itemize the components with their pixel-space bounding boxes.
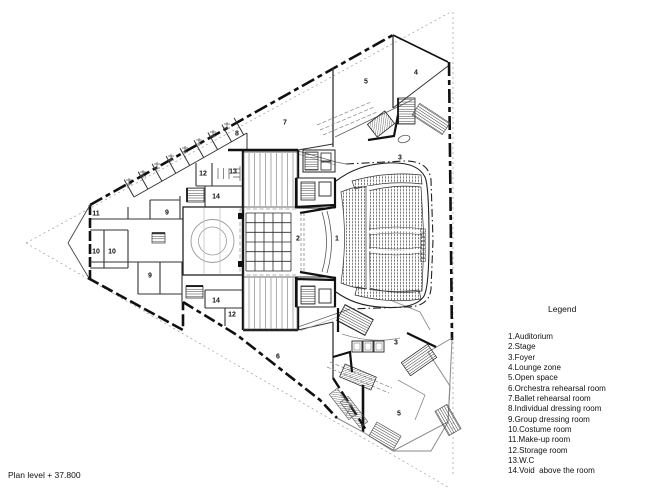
legend-list: 1.Auditorium2.Stage3.Foyer4.Lounge zone5… — [505, 332, 650, 477]
legend-item: 2.Stage — [508, 342, 650, 352]
room-number-label: 8 — [235, 131, 239, 138]
legend-item: 1.Auditorium — [508, 332, 650, 342]
legend-item: 3.Foyer — [508, 353, 650, 363]
legend-item: 10.Costume room — [508, 425, 650, 435]
room-number-label: 3 — [394, 340, 398, 347]
dressing-rooms-band — [124, 118, 247, 197]
legend-item: 14.Void above the room — [508, 466, 650, 476]
room-number-label: 13 — [229, 169, 237, 176]
plan-level-label: Plan level + 37.800 — [8, 470, 81, 480]
legend: Legend 1.Auditorium2.Stage3.Foyer4.Loung… — [505, 304, 650, 477]
floor-plan-canvas: 1233455678991010111212131414 Legend 1.Au… — [0, 0, 650, 488]
room-number-label: 5 — [397, 411, 401, 418]
room-number-label: 12 — [228, 312, 236, 319]
room-number-label: 12 — [199, 171, 207, 178]
legend-item: 9.Group dressing room — [508, 415, 650, 425]
room-number-label: 10 — [108, 249, 116, 256]
room-number-label: 14 — [212, 298, 220, 305]
legend-item: 7.Ballet rehearsal room — [508, 394, 650, 404]
legend-item: 12.Storage room — [508, 446, 650, 456]
room-number-label: 1 — [335, 236, 339, 243]
fly-slats-bottom — [249, 278, 293, 329]
legend-item: 4.Lounge zone — [508, 363, 650, 373]
room-number-label: 6 — [276, 354, 280, 361]
room-number-label: 3 — [398, 155, 402, 162]
legend-item: 5.Open space — [508, 373, 650, 383]
room-number-label: 9 — [165, 210, 169, 217]
room-number-label: 11 — [92, 211, 99, 218]
legend-item: 11.Make-up room — [508, 435, 650, 445]
legend-item: 6.Orchestra rehearsal room — [508, 384, 650, 394]
room-number-label: 2 — [296, 236, 300, 243]
room-number-label: 14 — [212, 194, 220, 201]
fly-slats-top — [249, 153, 293, 206]
revolving-stage-circle — [191, 220, 234, 263]
stage-grid — [246, 213, 291, 271]
legend-item: 8.Individual dressing room — [508, 404, 650, 414]
room-number-label: 5 — [364, 79, 368, 86]
proscenium-boxes — [296, 150, 335, 307]
room-number-label: 7 — [283, 120, 287, 127]
auditorium — [336, 161, 433, 309]
legend-title: Legend — [548, 304, 650, 314]
room-number-label: 9 — [148, 273, 152, 280]
legend-item: 13.W.C — [508, 456, 650, 466]
room-number-label: 4 — [414, 70, 418, 77]
auditorium-seating — [341, 174, 424, 301]
room-number-label: 10 — [92, 249, 100, 256]
